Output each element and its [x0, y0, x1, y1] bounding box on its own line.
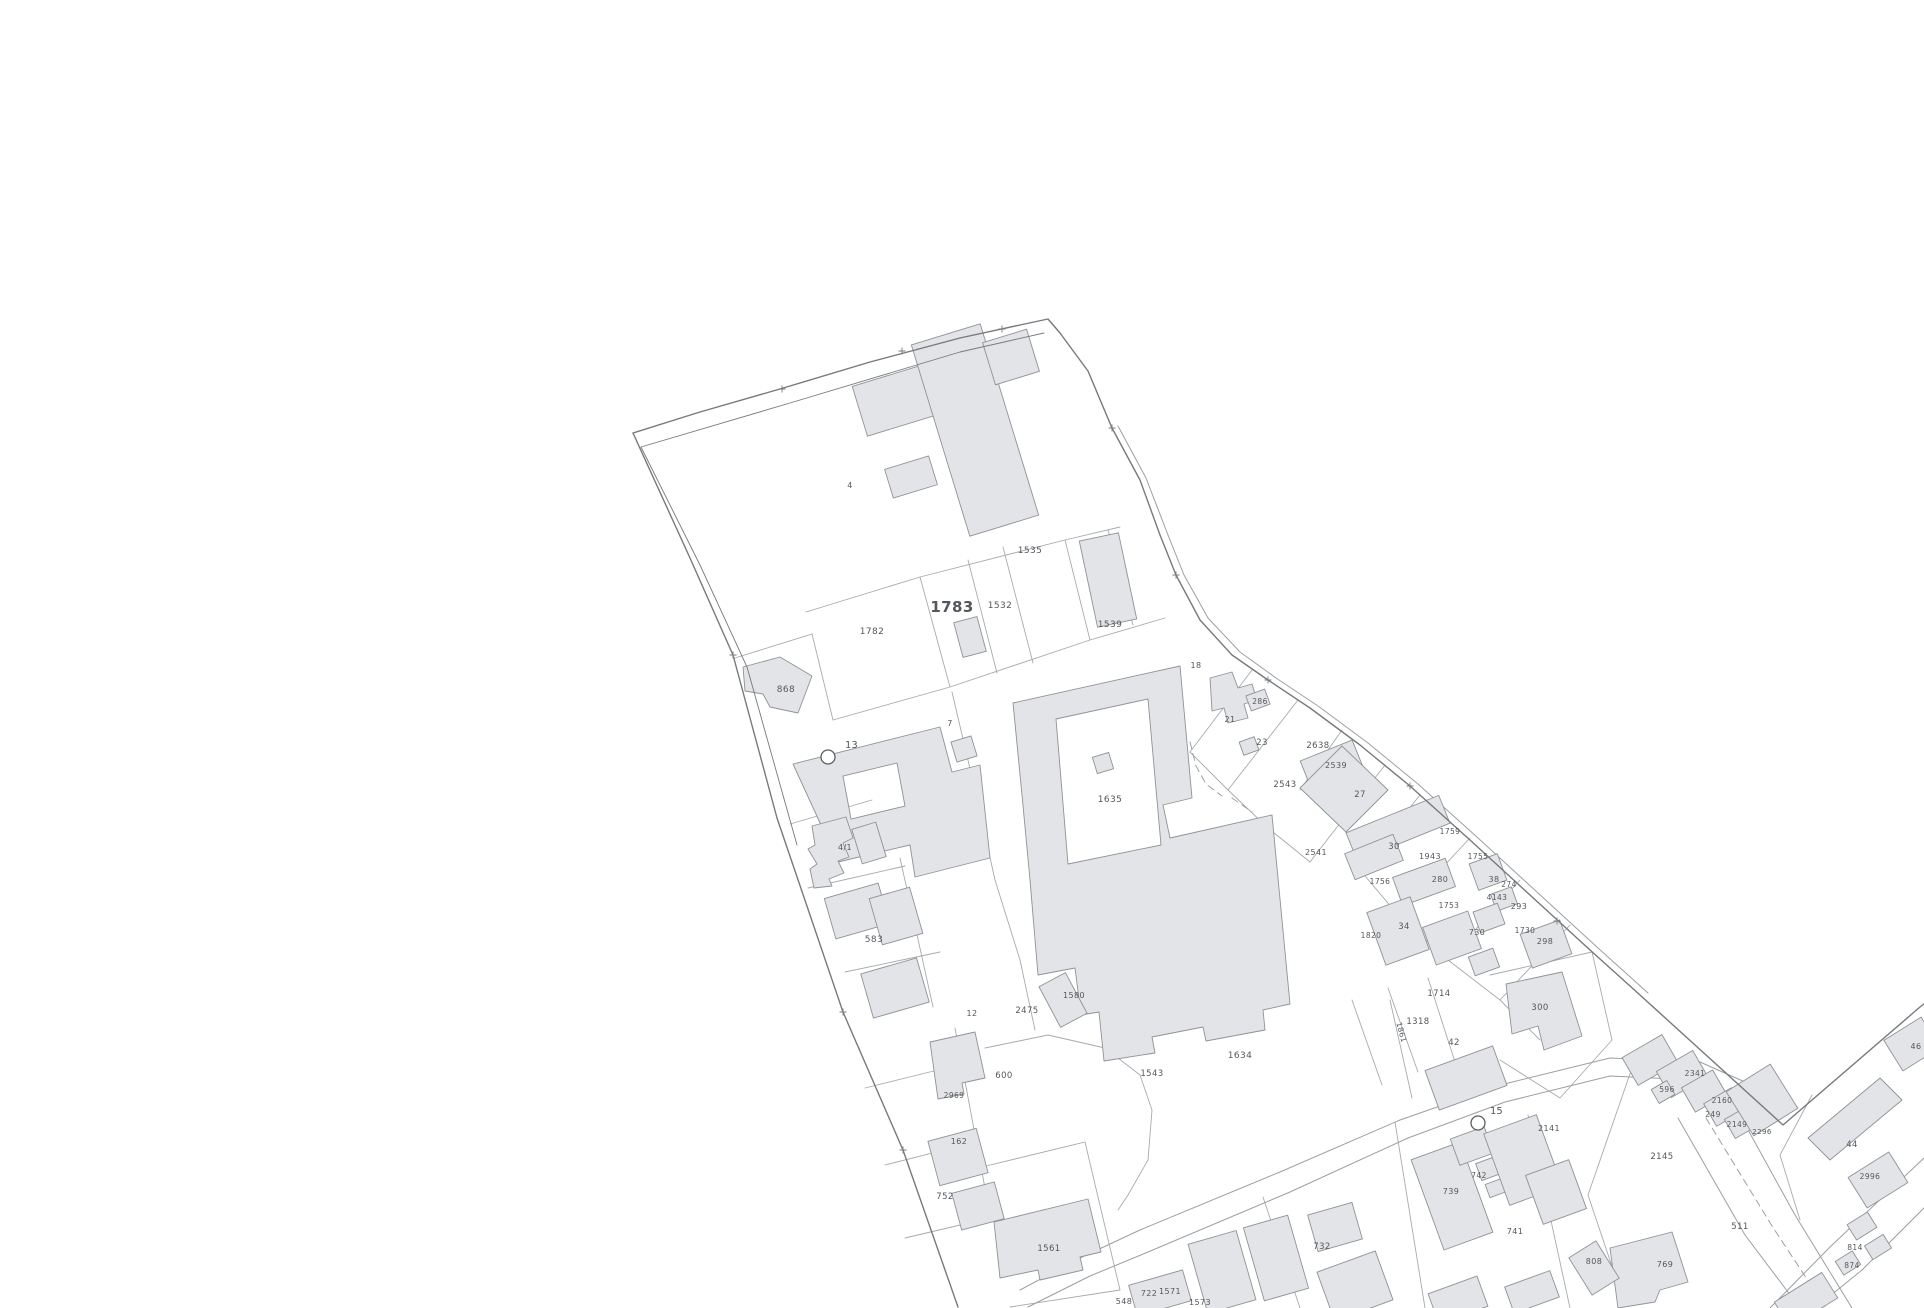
parcel-label: 44: [1846, 1140, 1858, 1150]
building-footprint: [1428, 1276, 1488, 1308]
parcel-label: 4: [847, 481, 853, 490]
parcel-label: 2543: [1273, 780, 1296, 790]
parcel-label: 2475: [1015, 1006, 1038, 1016]
parcel-label: 2160: [1712, 1096, 1733, 1105]
building-footprint: [1425, 1046, 1507, 1110]
parcel-label: 38: [1489, 875, 1500, 884]
parcel-label: 2638: [1306, 741, 1329, 751]
parcel-label: 739: [1443, 1187, 1459, 1196]
parcel-label: 1755: [1468, 852, 1489, 861]
parcel-label: 34: [1398, 922, 1410, 932]
parcel-line: [1352, 1000, 1382, 1085]
parcel-label: 868: [777, 685, 795, 695]
parcel-label: 1318: [1406, 1017, 1429, 1027]
parcel-label: 742: [1471, 1171, 1487, 1180]
parcel-line: [920, 577, 950, 687]
road-centerline-dashed: [1706, 1118, 1826, 1308]
building-footprint: [1505, 1271, 1560, 1308]
parcel-label: 4/1: [838, 843, 852, 852]
parcel-label: 1753: [1439, 901, 1460, 910]
parcel-label: 1634: [1228, 1051, 1253, 1061]
boundary-tick-icon: [1173, 572, 1180, 579]
boundary-tick-icon: [999, 326, 1006, 333]
survey-point-marker: [1471, 1116, 1485, 1130]
building-footprint: [1774, 1272, 1837, 1308]
boundary-tick-icon: [1109, 425, 1116, 432]
building-footprint: [885, 456, 938, 498]
parcel-line: [1390, 1000, 1412, 1098]
parcel-label: 1543: [1140, 1069, 1163, 1079]
parcel-label: 2541: [1305, 848, 1327, 857]
parcel-label: 1943: [1419, 852, 1441, 861]
parcel-label: 752: [936, 1192, 953, 1202]
parcel-label: 162: [951, 1137, 967, 1146]
parcel-label: 2149: [1727, 1120, 1748, 1129]
building-footprint: [808, 817, 853, 888]
parcel-label: 30: [1388, 842, 1400, 852]
parcel-label: 1573: [1189, 1298, 1211, 1307]
parcel-label: 732: [1313, 1242, 1330, 1252]
site-boundary: [633, 433, 958, 1307]
survey-point-label: 13: [845, 740, 858, 751]
parcel-label: 300: [1531, 1003, 1548, 1013]
parcel-label: 249: [1705, 1110, 1721, 1119]
parcel-label: 722: [1141, 1289, 1157, 1298]
parcel-label: 548: [1116, 1297, 1132, 1306]
building-footprint: [1243, 1215, 1308, 1301]
parcel-label: 293: [1511, 902, 1527, 911]
parcel-label: 18: [1191, 661, 1202, 670]
cadastral-map: 131541783178215321535153986874/158316351…: [0, 0, 1924, 1308]
parcel-label: 27: [1354, 790, 1366, 800]
parcel-label: 583: [865, 935, 883, 945]
parcel-label: 21: [1225, 715, 1236, 724]
building-footprint: [1847, 1212, 1877, 1240]
building-footprint: [1188, 1231, 1256, 1308]
boundary-tick-icon: [779, 386, 786, 393]
parcel-label: 298: [1537, 937, 1553, 946]
parcel-label: 23: [1256, 738, 1268, 748]
parcel-label: 1580: [1063, 991, 1085, 1000]
building-footprint: [1468, 948, 1499, 976]
parcel-label: 1571: [1159, 1287, 1181, 1296]
parcel-label: 814: [1847, 1243, 1863, 1252]
parcel-label: 4143: [1487, 893, 1508, 902]
map-canvas: 131541783178215321535153986874/158316351…: [0, 0, 1924, 1308]
road-edge: [1678, 1118, 1800, 1308]
parcel-label: 808: [1586, 1257, 1602, 1266]
boundary-tick-icon: [840, 1009, 847, 1016]
building-footprint: [930, 1032, 985, 1099]
parcel-label: 2539: [1325, 761, 1347, 770]
parcel-label: 769: [1657, 1260, 1673, 1269]
building-footprint: [1864, 1234, 1891, 1259]
parcel-label: 1730: [1515, 926, 1536, 935]
parcel-label: 286: [1252, 697, 1268, 706]
parcel-label: 1535: [1018, 546, 1043, 556]
parcel-label: 2296: [1752, 1128, 1772, 1136]
parcel-label: 280: [1432, 875, 1448, 884]
parcel-label: 730: [1469, 928, 1485, 937]
parcel-label: 274: [1501, 880, 1517, 889]
parcel-label: 7: [947, 719, 953, 728]
building-footprint: [1317, 1251, 1393, 1308]
building-footprint: [1092, 752, 1113, 773]
building-footprint: [951, 736, 977, 762]
parcel-label: 1539: [1098, 620, 1123, 630]
boundary-tick-icon: [900, 1147, 907, 1154]
parcel-label: 1759: [1440, 827, 1461, 836]
parcel-label: 1714: [1427, 989, 1450, 999]
parcel-label: 46: [1911, 1042, 1922, 1051]
parcel-label: 1783: [930, 598, 973, 616]
building-footprint: [994, 1199, 1101, 1280]
parcel-line: [735, 634, 812, 658]
parcel-line: [968, 560, 997, 673]
parcel-label: 2341: [1685, 1069, 1706, 1078]
parcel-label: 1820: [1361, 931, 1382, 940]
parcel-label: 2141: [1538, 1124, 1560, 1133]
parcel-label: 12: [967, 1009, 978, 1018]
building-footprint: [954, 617, 986, 658]
survey-point-label: 15: [1490, 1106, 1503, 1117]
building-footprint: [1079, 533, 1136, 627]
parcel-label: 511: [1731, 1222, 1748, 1232]
parcel-label: 2145: [1650, 1152, 1673, 1162]
parcel-label: 600: [995, 1071, 1012, 1081]
building-footprint: [1610, 1232, 1688, 1308]
parcel-line: [812, 634, 833, 720]
road-centerline-dashed: [1190, 742, 1222, 796]
parcel-label: 2969: [944, 1091, 965, 1100]
parcel-label: 741: [1507, 1227, 1523, 1236]
parcel-line: [1395, 1122, 1425, 1308]
parcel-line: [985, 1035, 1152, 1210]
parcel-label: 1756: [1370, 877, 1391, 886]
parcel-label: 1532: [988, 601, 1013, 611]
parcel-label: 2996: [1860, 1172, 1881, 1181]
survey-point-marker: [821, 750, 835, 764]
parcel-label: 596: [1659, 1085, 1675, 1094]
parcel-label: 42: [1448, 1038, 1460, 1048]
parcel-label: 874: [1844, 1261, 1860, 1270]
parcel-label: 1782: [860, 627, 885, 637]
parcel-label: 1635: [1098, 795, 1123, 805]
parcel-label: 1561: [1037, 1244, 1060, 1254]
